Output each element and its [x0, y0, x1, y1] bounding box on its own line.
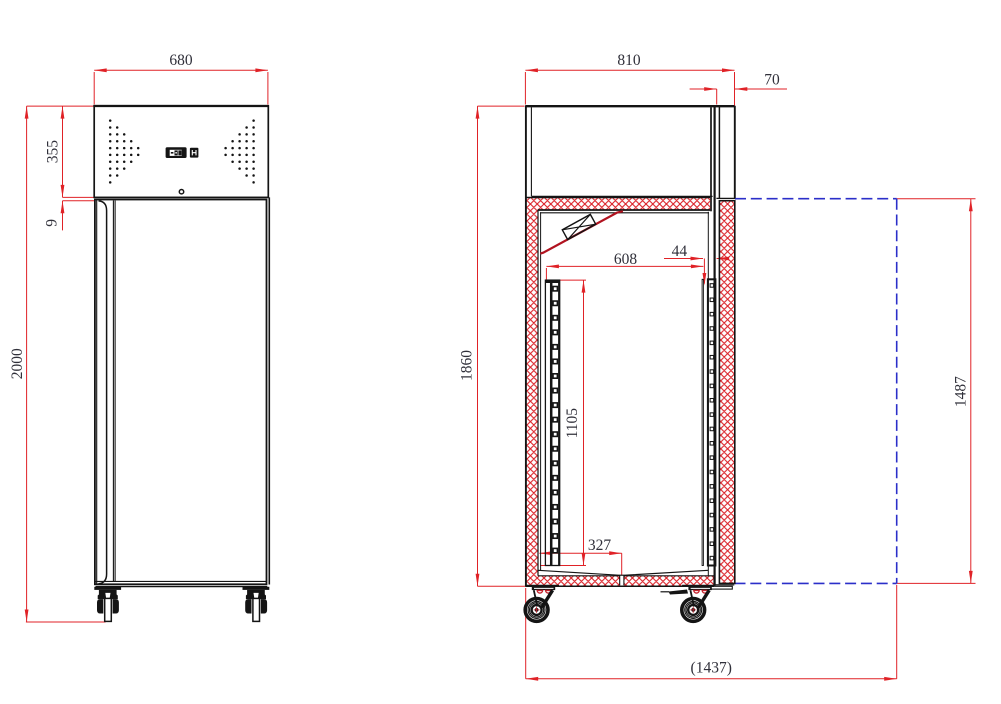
svg-text:810: 810: [617, 52, 641, 69]
svg-text:1860: 1860: [459, 350, 476, 381]
svg-text:608: 608: [614, 251, 638, 268]
svg-text:1105: 1105: [564, 408, 581, 439]
svg-text:2000: 2000: [9, 348, 26, 379]
svg-text:9: 9: [44, 219, 61, 227]
svg-text:327: 327: [588, 537, 612, 554]
svg-text:70: 70: [764, 71, 780, 88]
svg-text:1487: 1487: [953, 376, 970, 407]
svg-text:44: 44: [672, 243, 688, 260]
svg-text:355: 355: [44, 140, 61, 164]
svg-text:(1437): (1437): [691, 660, 732, 677]
svg-text:680: 680: [169, 52, 193, 69]
